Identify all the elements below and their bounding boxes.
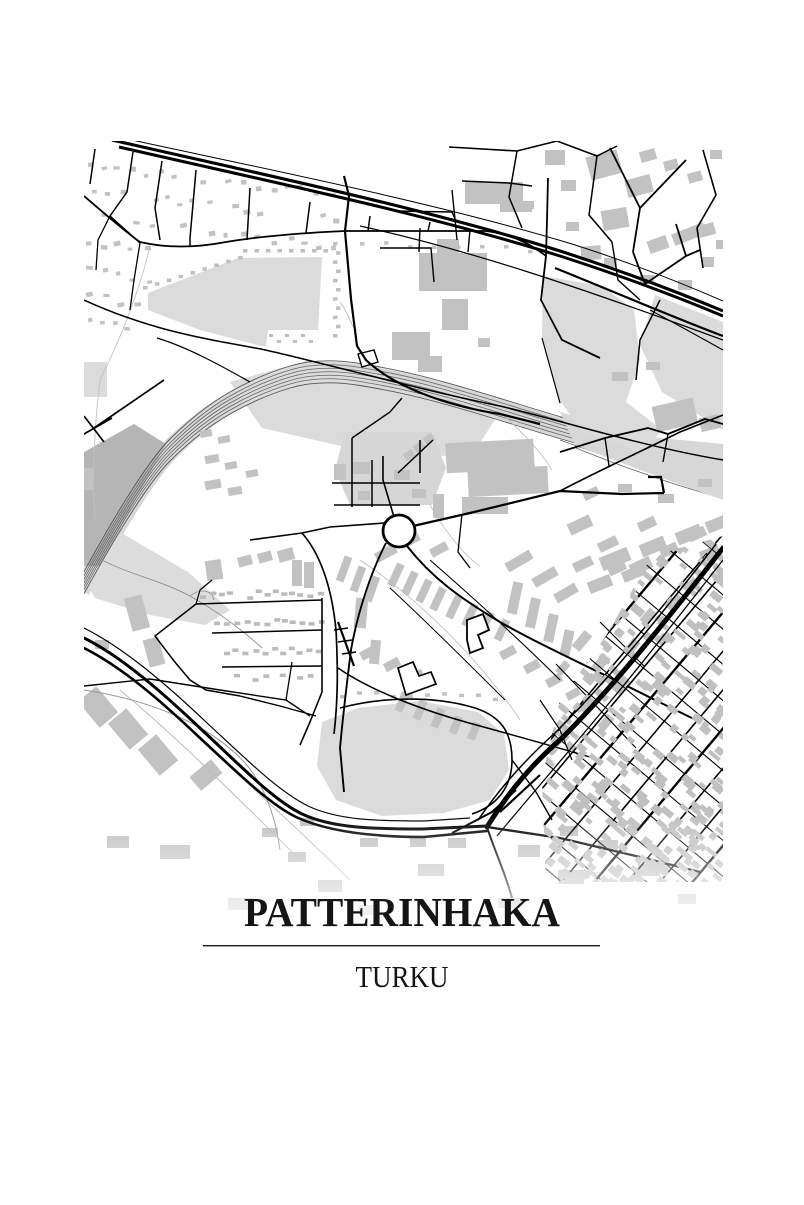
svg-text:TURKU: TURKU [356, 959, 449, 994]
svg-text:PATTERINHAKA: PATTERINHAKA [244, 889, 560, 935]
